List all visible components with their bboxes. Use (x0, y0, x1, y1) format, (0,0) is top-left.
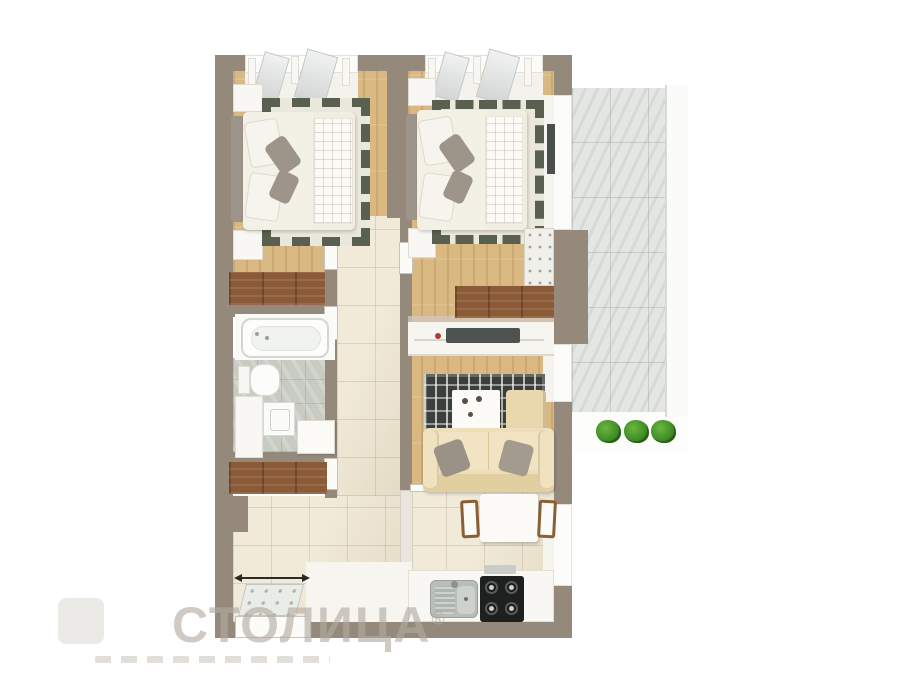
sofa (423, 428, 554, 492)
cooktop (480, 576, 524, 622)
burner-icon-3 (485, 602, 498, 615)
tv-accent-dot (435, 333, 441, 339)
hallway-floor (337, 216, 400, 496)
living-balcony-window (552, 344, 572, 402)
burner-icon-2 (505, 581, 518, 594)
closet-wardrobe (229, 462, 327, 494)
wall-bedroom-divider (387, 55, 408, 218)
coffee-table (452, 390, 500, 430)
wall-entry-stub (233, 496, 248, 532)
sofa-seat-seam (488, 432, 489, 470)
bathroom-vanity (235, 396, 263, 458)
toilet-bowl (250, 364, 280, 396)
dining-table (480, 494, 538, 542)
entry-arrow-left-icon (234, 574, 242, 582)
bedroom1-window-post-3 (342, 58, 350, 86)
balcony-plant-3 (651, 420, 676, 443)
balcony-railing (665, 85, 688, 417)
bedroom1-foot-quilt (313, 118, 353, 224)
bedroom2-bed (417, 110, 527, 230)
cup-icon-1 (462, 398, 468, 404)
watermark-brand-text: СТОЛИЦА (172, 597, 431, 653)
bedroom1-bed (243, 112, 355, 230)
bedroom2-balcony-window (552, 95, 572, 230)
bedroom2-dresser (455, 286, 554, 318)
entry-arrow-right-icon (302, 574, 310, 582)
bathtub-tap-icon (255, 332, 259, 336)
sofa-pillow-right (497, 439, 534, 478)
kitchen-backsplash-item (484, 565, 516, 574)
balcony-plant-2 (624, 420, 649, 443)
wall-kitchen-stub (400, 490, 413, 572)
bedroom1-wardrobe (229, 272, 325, 305)
bedroom1-nightstand-bottom (233, 230, 263, 260)
bathroom-cabinet (297, 420, 335, 454)
floorplan-scene: СТОЛИЦА® (0, 0, 900, 700)
burner-icon-1 (485, 581, 498, 594)
tv-screen (446, 328, 520, 343)
dining-chair-right (537, 500, 557, 539)
bedroom2-window-post-2 (473, 56, 481, 84)
bedroom1-window-post-2 (291, 56, 299, 84)
wall-hall-right-b (400, 272, 412, 490)
entry-door-swing-line (240, 577, 304, 579)
watermark-subline (95, 656, 330, 663)
bedroom2-window-post-3 (524, 58, 532, 86)
sofa-backrest (423, 474, 554, 492)
bedroom2-tv-panel (547, 124, 555, 174)
pouf (506, 390, 546, 432)
sofa-armrest-right (538, 430, 554, 488)
bathtub-drain-icon (265, 336, 269, 340)
washing-machine (263, 402, 295, 436)
toilet-tank (238, 366, 250, 394)
wall-hall-left-b (325, 268, 337, 308)
balcony-plant-1 (596, 420, 621, 443)
watermark-registered-mark: ® (431, 608, 446, 628)
bedroom2-foot-quilt (485, 116, 523, 224)
cup-icon-3 (468, 412, 473, 417)
faucet-icon (451, 581, 458, 588)
watermark-brand: СТОЛИЦА® (172, 596, 447, 654)
bathtub-basin (251, 326, 321, 351)
wall-balcony-pier (554, 230, 588, 344)
watermark-emblem (58, 598, 104, 644)
dining-chair-left (460, 500, 480, 539)
sink-drain-icon (464, 597, 468, 601)
bedroom1-nightstand-top (233, 84, 263, 112)
bedroom2-dotted-wardrobe (524, 228, 554, 286)
cup-icon-2 (476, 396, 482, 402)
bathtub (241, 318, 329, 358)
burner-icon-4 (505, 602, 518, 615)
washing-machine-door (270, 409, 290, 431)
bedroom1-window-post-1 (248, 58, 256, 86)
